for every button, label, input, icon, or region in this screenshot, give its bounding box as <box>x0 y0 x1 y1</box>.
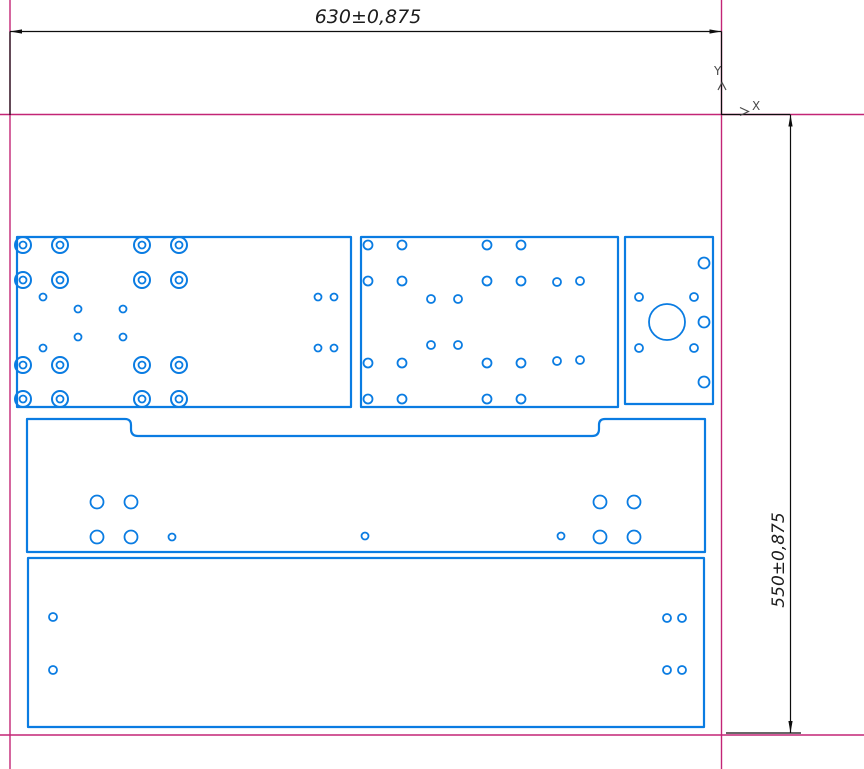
hole <box>628 531 641 544</box>
hole <box>125 531 138 544</box>
counterbore-hole-inner <box>57 242 64 249</box>
dimension-arrowhead <box>10 29 22 33</box>
hole <box>91 531 104 544</box>
hole <box>49 613 57 621</box>
hole <box>635 344 643 352</box>
counterbore-hole <box>52 357 68 373</box>
axis-y-label: Y <box>714 64 721 78</box>
hole <box>120 306 127 313</box>
hole <box>553 278 561 286</box>
dimension-height-label: 550±0,875 <box>767 460 791 660</box>
hole <box>454 341 462 349</box>
hole <box>594 531 607 544</box>
hole <box>454 295 462 303</box>
axis-x-label: X <box>752 99 760 113</box>
hole <box>517 241 526 250</box>
hole <box>483 359 492 368</box>
hole <box>40 345 47 352</box>
counterbore-hole <box>171 357 187 373</box>
drawing-svg[interactable] <box>0 0 864 769</box>
counterbore-hole-inner <box>57 396 64 403</box>
hole <box>699 317 710 328</box>
counterbore-hole-inner <box>139 362 146 369</box>
counterbore-hole <box>134 272 150 288</box>
counterbore-hole-inner <box>20 242 27 249</box>
hole <box>427 295 435 303</box>
hole <box>40 294 47 301</box>
hole <box>576 277 584 285</box>
counterbore-hole-inner <box>57 277 64 284</box>
hole <box>49 666 57 674</box>
counterbore-hole <box>134 237 150 253</box>
hole <box>517 359 526 368</box>
dimension-arrowhead <box>788 115 792 127</box>
counterbore-hole <box>52 391 68 407</box>
hole <box>427 341 435 349</box>
counterbore-hole <box>52 237 68 253</box>
counterbore-hole-inner <box>20 396 27 403</box>
hole <box>699 258 710 269</box>
hole <box>628 496 641 509</box>
hole <box>91 496 104 509</box>
counterbore-hole-inner <box>176 242 183 249</box>
hole <box>553 357 561 365</box>
hole <box>699 377 710 388</box>
hole <box>315 345 322 352</box>
hole <box>690 293 698 301</box>
hole <box>517 395 526 404</box>
counterbore-hole-inner <box>139 277 146 284</box>
counterbore-hole <box>171 272 187 288</box>
hole <box>75 334 82 341</box>
hole <box>125 496 138 509</box>
hole <box>576 356 584 364</box>
dimension-arrowhead <box>710 29 722 33</box>
hole <box>331 294 338 301</box>
hole <box>398 277 407 286</box>
hole <box>120 334 127 341</box>
hole <box>663 614 671 622</box>
hole <box>483 277 492 286</box>
counterbore-hole <box>134 357 150 373</box>
counterbore-hole-inner <box>139 242 146 249</box>
counterbore-hole <box>52 272 68 288</box>
plate-bottom[interactable] <box>28 558 704 727</box>
hole <box>398 359 407 368</box>
hole <box>594 496 607 509</box>
hole <box>678 666 686 674</box>
counterbore-hole-inner <box>139 396 146 403</box>
dimension-width-label: 630±0,875 <box>268 6 468 28</box>
hole <box>364 395 373 404</box>
plate-top-middle[interactable] <box>361 237 618 407</box>
counterbore-hole-inner <box>176 396 183 403</box>
dimension-arrowhead <box>788 721 792 733</box>
counterbore-hole-inner <box>176 277 183 284</box>
hole <box>398 395 407 404</box>
cad-viewport[interactable]: 630±0,875 550±0,875 Y X <box>0 0 864 769</box>
counterbore-hole-inner <box>57 362 64 369</box>
counterbore-hole-inner <box>20 277 27 284</box>
counterbore-hole <box>171 237 187 253</box>
hole <box>483 241 492 250</box>
hole <box>690 344 698 352</box>
hole <box>364 241 373 250</box>
hole <box>169 534 176 541</box>
counterbore-hole-inner <box>20 362 27 369</box>
counterbore-hole <box>134 391 150 407</box>
hole <box>364 277 373 286</box>
hole <box>635 293 643 301</box>
hole <box>483 395 492 404</box>
hole <box>663 666 671 674</box>
hole <box>517 277 526 286</box>
hole <box>315 294 322 301</box>
hole <box>678 614 686 622</box>
hole <box>649 304 685 340</box>
hole <box>362 533 369 540</box>
plate-top-left[interactable] <box>17 237 351 407</box>
hole <box>364 359 373 368</box>
hole <box>75 306 82 313</box>
counterbore-hole-inner <box>176 362 183 369</box>
hole <box>331 345 338 352</box>
counterbore-hole <box>171 391 187 407</box>
hole <box>398 241 407 250</box>
hole <box>558 533 565 540</box>
